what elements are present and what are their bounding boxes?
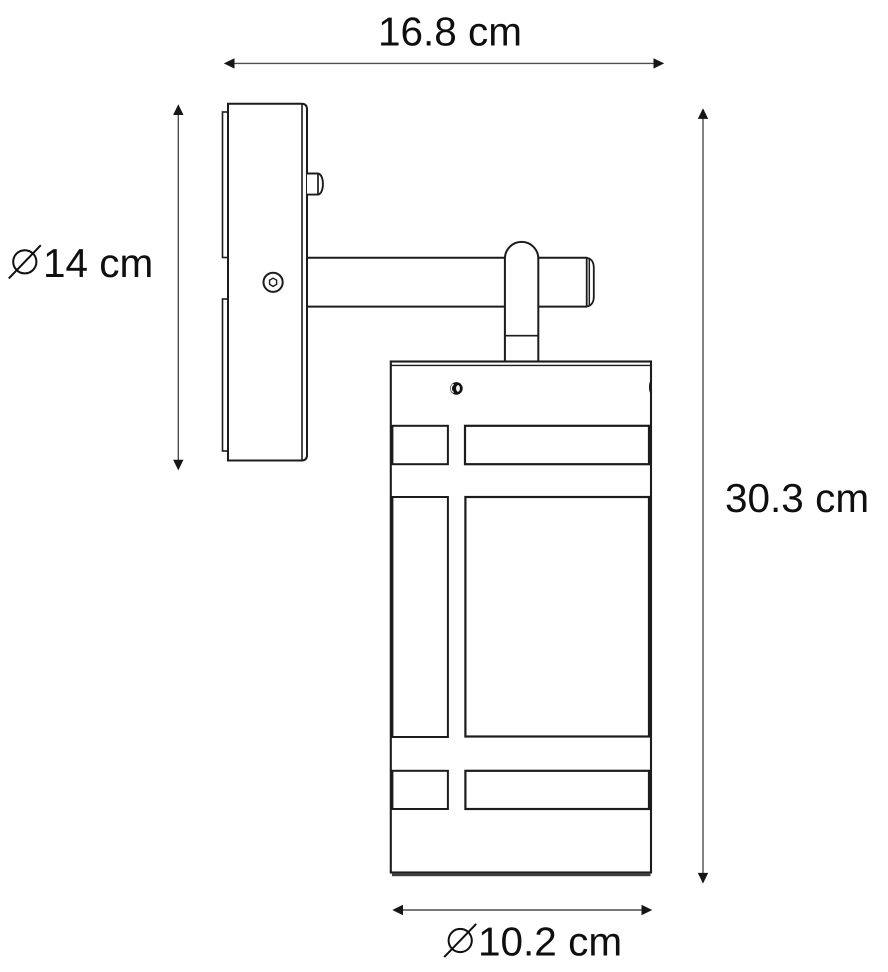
svg-text:16.8 cm: 16.8 cm — [378, 9, 522, 55]
svg-text:14 cm: 14 cm — [43, 240, 153, 286]
svg-text:30.3 cm: 30.3 cm — [725, 475, 869, 521]
svg-text:10.2 cm: 10.2 cm — [478, 919, 622, 965]
